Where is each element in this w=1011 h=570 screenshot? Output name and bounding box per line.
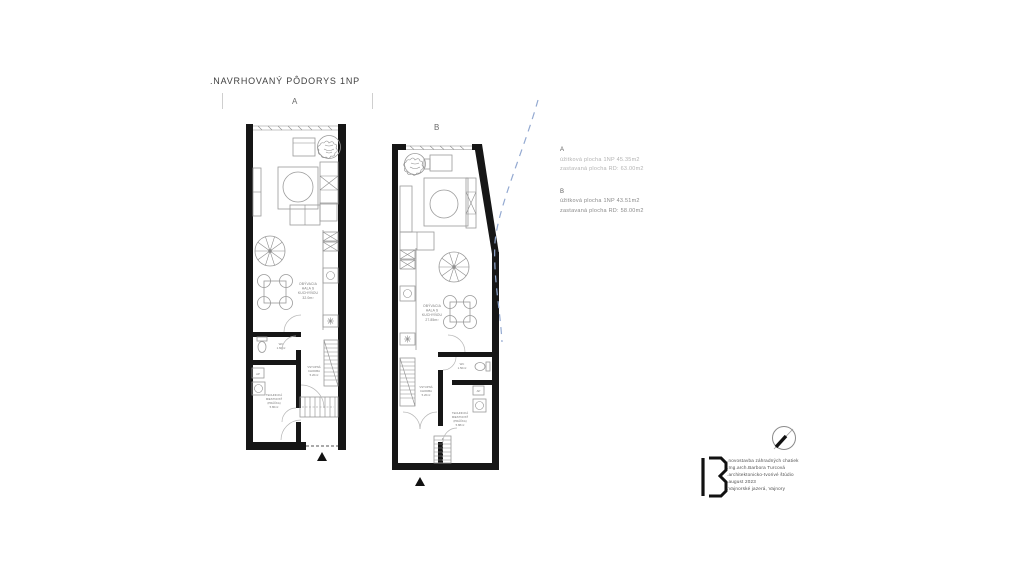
legend-b-builtup-area: zastavaná plocha RD: 58.00m2 <box>560 207 644 217</box>
sideboard <box>253 168 261 216</box>
wardrobe <box>400 358 415 406</box>
washing-machine-icon <box>473 399 486 412</box>
legend-b-usable-area: úžitková plocha 1NP 43.51m2 <box>560 197 644 207</box>
legend-b-label: B <box>560 188 644 198</box>
sink-icon <box>323 268 338 283</box>
svg-text:1.50m²: 1.50m² <box>458 366 467 370</box>
plan-b-window <box>406 146 472 150</box>
entrance-marker-a <box>317 452 327 461</box>
sofa <box>290 203 337 225</box>
credit-location: .Vajnorské jazerá, Vajnory <box>727 485 799 492</box>
svg-text:OBÝVACIA: OBÝVACIA <box>299 282 318 286</box>
sofa <box>400 186 434 250</box>
svg-text:27.85m²: 27.85m² <box>425 318 439 322</box>
cabinet <box>320 162 338 204</box>
svg-text:KUCHYŇOU: KUCHYŇOU <box>298 291 319 295</box>
studio-logo-icon <box>699 455 729 499</box>
toilet-icon <box>257 337 267 353</box>
fridge-icon <box>323 315 338 327</box>
rug-and-table <box>278 167 318 209</box>
tv-table <box>424 155 452 171</box>
north-arrow-icon <box>764 418 804 458</box>
wardrobe <box>324 340 338 386</box>
dining-table <box>258 275 293 310</box>
boundary-tick-left <box>222 93 223 109</box>
credit-date: .august 2023 <box>727 478 799 485</box>
plan-a-window <box>253 126 338 130</box>
rug-and-table <box>424 178 468 226</box>
plant-icon <box>318 136 341 159</box>
plan-a-label: A <box>292 97 298 106</box>
svg-text:HALA S: HALA S <box>426 309 439 313</box>
fridge-icon <box>400 333 415 345</box>
project-credits: .novostavba záhradných chatiek .Ing.arch… <box>727 457 799 492</box>
boundary-tick-right <box>372 93 373 109</box>
spiral-staircase-icon <box>439 252 469 282</box>
stairs <box>300 397 338 417</box>
legend-a-usable-area: úžitková plocha 1NP 45.35m2 <box>560 156 644 166</box>
page-title: .NAVRHOVANÝ PÔDORYS 1NP <box>210 76 360 86</box>
dining-table <box>444 296 477 329</box>
cabinet <box>466 178 476 228</box>
svg-text:5.20m²: 5.20m² <box>422 393 431 397</box>
legend-a-label: A <box>560 146 644 156</box>
property-boundary-line <box>480 92 550 352</box>
entrance-marker-b <box>415 477 425 486</box>
svg-text:5.20m²: 5.20m² <box>310 373 319 377</box>
toilet-icon <box>475 362 490 371</box>
page-canvas: { "title": ".NAVRHOVANÝ PÔDORYS 1NP", "p… <box>0 0 1011 570</box>
credit-architect: .Ing.arch.Barbora Turcová <box>727 464 799 471</box>
svg-text:HALA S: HALA S <box>302 287 315 291</box>
svg-text:AP: AP <box>477 389 481 393</box>
svg-text:5.80m²: 5.80m² <box>270 405 279 409</box>
credit-project: .novostavba záhradných chatiek <box>727 457 799 464</box>
svg-text:32.0m²: 32.0m² <box>302 296 314 300</box>
kitchen-counter <box>323 230 338 330</box>
tv-table <box>293 138 315 156</box>
plant-icon <box>404 154 426 176</box>
svg-text:1.60m²: 1.60m² <box>277 346 286 350</box>
plan-b-label: B <box>434 123 440 132</box>
svg-text:AP: AP <box>256 372 260 376</box>
area-legend: A úžitková plocha 1NP 45.35m2 zastavaná … <box>560 146 644 216</box>
sink-icon <box>400 286 415 301</box>
credit-studio: .architektonicko-tvorivé štúdio <box>727 471 799 478</box>
kitchen-counter <box>400 248 416 350</box>
plan-b-room-labels: OBÝVACIA HALA S KUCHYŇOU 27.85m² WC 1.50… <box>419 304 480 427</box>
svg-text:KUCHYŇOU: KUCHYŇOU <box>422 313 443 317</box>
floor-plan-a: OBÝVACIA HALA S KUCHYŇOU 32.0m² WC 1.60m… <box>244 118 354 470</box>
svg-text:OBÝVACIA: OBÝVACIA <box>423 304 442 308</box>
svg-text:5.88m²: 5.88m² <box>456 423 465 427</box>
spiral-staircase-icon <box>255 236 285 266</box>
legend-a-builtup-area: zastavaná plocha RD: 63.00m2 <box>560 165 644 175</box>
washing-machine-icon <box>252 382 265 395</box>
